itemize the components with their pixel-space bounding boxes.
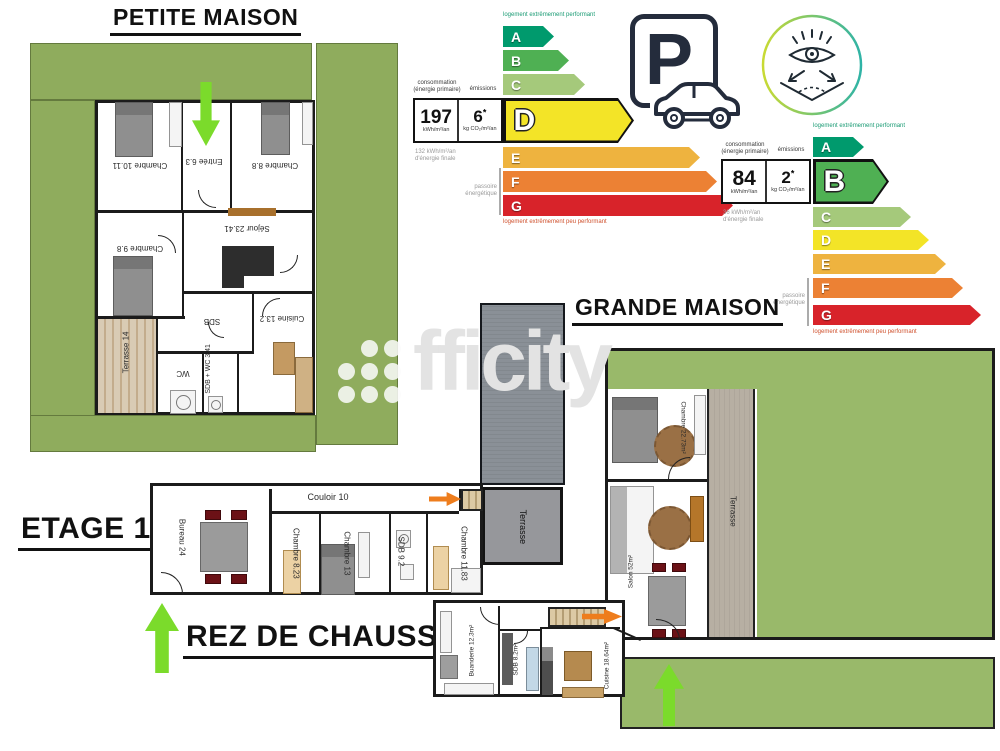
chair <box>231 574 247 584</box>
room-label-sdb: SDB 9.2 <box>396 526 405 576</box>
dpe-conso-label: consommation (énergie primaire) <box>719 142 771 156</box>
table <box>200 522 248 572</box>
dpe-kwh-unit: kWh/m²/an <box>731 190 758 196</box>
wall <box>389 514 391 595</box>
sofa <box>222 246 274 276</box>
dpe-passoire-line1: passoire <box>782 293 805 299</box>
kitchen-counter <box>273 342 295 375</box>
virtual-visit-eye-icon <box>757 12 867 122</box>
room-label-terrasse: Terrasse 14 <box>123 323 132 381</box>
dpe-passoire-bracket <box>499 168 501 215</box>
wall <box>230 102 232 212</box>
room-label-sdb: SDB 8.2m² <box>512 630 519 690</box>
wall <box>202 353 204 413</box>
wall <box>540 627 620 629</box>
dpe-top-label: logement extrêmement performant <box>813 123 948 129</box>
room-label-chambre: Chambre 9.8 <box>108 243 172 252</box>
room-label-chambre: Chambre 13 <box>342 521 351 585</box>
dpe-conso-label: consommation (énergie primaire) <box>411 80 463 94</box>
dpe-emissions-label: émissions <box>465 86 501 93</box>
dpe-bottom-label: logement extrêmement peu performant <box>503 219 683 225</box>
room-label-sdb: SDB <box>192 316 232 325</box>
dpe-kwh-value: 197 <box>420 108 452 127</box>
dpe-grade-letter: D <box>514 106 536 136</box>
dpe-co2-star: * <box>791 169 795 179</box>
dpe-bar-f: F <box>813 278 963 298</box>
dpe-passoire-line2: énergétique <box>465 191 497 197</box>
dpe-bar-e: E <box>813 254 946 274</box>
dpe-grade-letter: C <box>821 210 831 224</box>
dpe-final-line1: 132 kWh/m²/an <box>415 149 456 155</box>
lawn-bottom-band <box>620 657 995 729</box>
chair <box>205 510 221 520</box>
table <box>564 651 592 681</box>
dpe-passoire-line1: passoire <box>474 184 497 190</box>
dpe-final-energy: 132 kWh/m²/an d'énergie finale <box>415 149 479 163</box>
dpe-grade-letter: G <box>821 308 832 322</box>
room-label-salon: Salon 52m² <box>627 544 634 600</box>
room-label-sdb-wc: SDB + WC 3.41 <box>205 338 213 400</box>
etage1-plan: Bureau 24 Couloir 10 Chambre 8.23 Chambr… <box>150 483 483 595</box>
dpe-grade-letter: E <box>511 151 520 165</box>
dpe-final-line1: 36 kWh/m²/an <box>723 210 760 216</box>
sideboard <box>228 208 276 216</box>
rug <box>648 506 692 550</box>
grande-maison-plan: Terrasse Chambre 22.73m² Salon 52m² <box>605 348 995 640</box>
washing-machine <box>170 390 196 414</box>
parking-icon: P <box>630 14 750 134</box>
wall <box>608 479 707 482</box>
dpe-co2-cell: 2* kg CO₂/m²/an <box>767 161 809 202</box>
dpe-conso-line2: (énergie primaire) <box>721 149 768 155</box>
dpe-bottom-label: logement extrêmement peu performant <box>813 329 983 335</box>
room-label-couloir: Couloir 10 <box>293 493 363 503</box>
table <box>648 576 686 626</box>
bed <box>612 397 658 463</box>
room-label-chambre: Chambre 10.11 <box>108 160 172 169</box>
bench <box>562 687 604 698</box>
wall <box>97 210 313 213</box>
chair <box>672 563 686 572</box>
dpe-grade-letter: E <box>821 257 830 271</box>
kitchen-counter <box>295 357 313 413</box>
dpe-bar-g: G <box>503 195 733 216</box>
room-label-chambre: Chambre 11.83 <box>459 521 468 585</box>
garden-top <box>30 43 312 100</box>
floor-plan-sheet: PETITE MAISON <box>0 0 1000 751</box>
grande-maison-title: GRANDE MAISON <box>572 294 783 326</box>
dpe-grade-letter: A <box>511 30 521 44</box>
room-label-wc: WC <box>166 368 200 377</box>
shelf <box>440 611 452 653</box>
shelf <box>444 683 494 695</box>
wall <box>182 212 184 318</box>
dpe-conso-line1: consommation <box>417 80 456 86</box>
wall <box>237 353 239 413</box>
wall <box>252 293 254 353</box>
dpe-bar-d-highlighted: D <box>503 98 634 143</box>
dpe-bar-c: C <box>813 207 911 227</box>
dpe-grade-letter: C <box>511 78 521 92</box>
etage1-title: ETAGE 1 <box>18 512 154 551</box>
dpe-grade-letter: G <box>511 199 522 213</box>
wall <box>156 318 158 413</box>
dpe-kwh-value: 84 <box>732 168 755 189</box>
dpe-co2-star: * <box>483 108 487 118</box>
sideboard <box>690 496 704 542</box>
wardrobe <box>302 102 313 145</box>
chair <box>205 574 221 584</box>
dpe-conso-line2: (énergie primaire) <box>413 87 460 93</box>
dpe-bar-f: F <box>503 171 717 192</box>
dpe-kwh-unit: kWh/m²/an <box>423 128 450 134</box>
room-label-cuisine: Cuisine 13.2 <box>252 313 312 322</box>
grande-terrace-strip: Terrasse <box>707 389 755 637</box>
kitchen-counter <box>542 661 553 695</box>
dpe-value-box: 84 kWh/m²/an 2* kg CO₂/m²/an <box>721 159 811 204</box>
room-label-chambre: Chambre 22.73m² <box>679 393 686 463</box>
garden-bottom <box>30 415 316 452</box>
dpe-kwh-cell: 84 kWh/m²/an <box>723 161 765 202</box>
lawn-top <box>608 351 992 389</box>
garden-left <box>30 100 95 452</box>
dpe-final-energy: 36 kWh/m²/an d'énergie finale <box>723 210 787 224</box>
dpe-bar-a: A <box>503 26 554 47</box>
dpe-conso-line1: consommation <box>725 142 764 148</box>
room-label-chambre: Chambre 8.23 <box>291 521 300 585</box>
bed <box>261 102 290 155</box>
sofa <box>222 276 244 288</box>
wardrobe <box>694 395 706 455</box>
stairs <box>461 489 483 511</box>
grande-roof <box>480 303 565 485</box>
wardrobe <box>358 532 370 578</box>
wall <box>426 514 428 595</box>
dpe-bar-c: C <box>503 74 585 95</box>
dpe-grade-letter: F <box>821 281 830 295</box>
dpe-final-line2: d'énergie finale <box>723 217 764 223</box>
dpe-bar-d: D <box>813 230 929 250</box>
dpe-co2-unit: kg CO₂/m²/an <box>463 127 496 133</box>
dpe-bar-a: A <box>813 137 864 157</box>
stairs-arrow-icon <box>429 492 461 506</box>
dpe-kwh-cell: 197 kWh/m²/an <box>415 100 457 141</box>
bed <box>115 102 153 157</box>
room-label-chambre: Chambre 8.8 <box>243 160 307 169</box>
petite-maison-plan: Chambre 10.11 Entrée 6.3 Chambre 8.8 Cha… <box>30 40 398 455</box>
wardrobe <box>169 102 182 147</box>
room-label-buanderie: Buanderie 12.3m² <box>468 621 475 681</box>
rez-plan: Buanderie 12.3m² SDB 8.2m² Cuisine 18.64… <box>433 600 625 697</box>
petite-maison-title: PETITE MAISON <box>110 4 301 36</box>
washing-machine <box>440 655 458 679</box>
dpe-co2-value: 2 <box>781 168 790 187</box>
room-label-terrasse: Terrasse <box>517 498 527 556</box>
wall <box>269 489 272 595</box>
bed <box>113 256 153 316</box>
room-label-sejour: Séjour 23.41 <box>213 223 281 232</box>
dpe-grade-letter: D <box>821 233 831 247</box>
dpe-co2-unit: kg CO₂/m²/an <box>771 188 804 194</box>
lawn-main <box>757 389 992 637</box>
dpe-grade-letter: B <box>511 54 521 68</box>
dpe-bar-b: B <box>503 50 569 71</box>
room-label-entree: Entrée 6.3 <box>178 156 230 165</box>
wall <box>272 511 459 514</box>
door-arc <box>161 572 183 594</box>
room-label-bureau: Bureau 24 <box>177 507 186 567</box>
shower <box>526 647 539 691</box>
rez-arrow-icon <box>145 603 179 673</box>
wall <box>182 291 313 294</box>
door-arc <box>480 607 500 625</box>
bathroom-counter <box>502 633 513 685</box>
chair <box>231 510 247 520</box>
dpe-bar-g: G <box>813 305 981 325</box>
dpe-grade-letter: A <box>821 140 831 154</box>
dpe-value-box: 197 kWh/m²/an 6* kg CO₂/m²/an <box>413 98 503 143</box>
room-label-terrasse: Terrasse <box>728 483 737 539</box>
dpe-passoire-label: passoire énergétique <box>457 184 497 198</box>
dpe-grade-letter: F <box>511 175 520 189</box>
dpe-emissions-label: émissions <box>773 147 809 154</box>
dpe-co2-cell: 6* kg CO₂/m²/an <box>459 100 501 141</box>
chair <box>652 563 666 572</box>
dpe-bar-e: E <box>503 147 700 168</box>
dpe-co2-value: 6 <box>473 107 482 126</box>
dpe-grade-letter: B <box>824 167 846 197</box>
dpe-passoire-bracket <box>807 278 809 326</box>
wardrobe <box>433 546 449 590</box>
kitchen-counter <box>542 647 553 661</box>
entrance-arrow-icon <box>654 664 684 726</box>
dpe-bar-b-highlighted: B <box>813 159 889 204</box>
garden-right <box>316 43 398 445</box>
car-icon <box>648 76 742 130</box>
grande-upper-terrace: Terrasse <box>482 487 563 565</box>
room-label-cuisine: Cuisine 18.64m² <box>603 636 610 696</box>
dpe-final-line2: d'énergie finale <box>415 156 456 162</box>
